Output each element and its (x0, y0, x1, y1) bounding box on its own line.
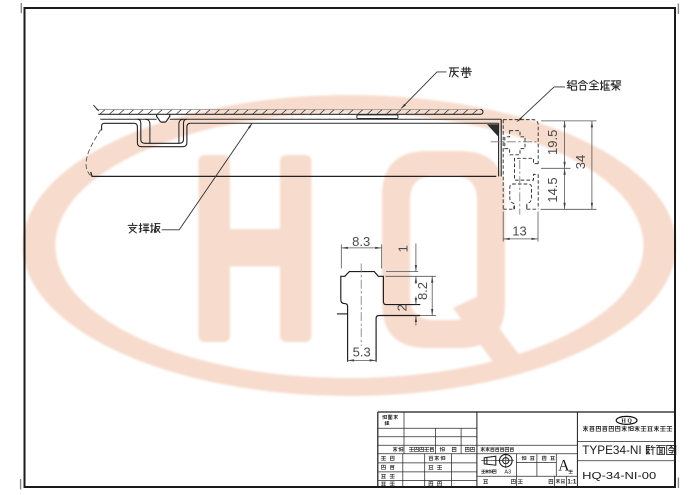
svg-text:13: 13 (512, 223, 526, 238)
svg-text:A3: A3 (504, 469, 511, 475)
svg-text:HQ-34-NI-00: HQ-34-NI-00 (582, 471, 656, 482)
svg-text:H Q: H Q (621, 419, 632, 425)
svg-text:1:1: 1:1 (567, 479, 577, 486)
svg-text:34: 34 (573, 155, 588, 169)
svg-text:14.5: 14.5 (545, 177, 560, 202)
svg-text:1: 1 (396, 245, 411, 252)
svg-text:2: 2 (395, 304, 410, 311)
svg-text:TYPE34-NI: TYPE34-NI (582, 443, 642, 457)
svg-text:8.2: 8.2 (415, 282, 430, 300)
svg-text:19.5: 19.5 (545, 130, 560, 155)
svg-text:8.3: 8.3 (352, 234, 370, 249)
svg-text:A: A (558, 457, 570, 474)
svg-text:5.3: 5.3 (353, 344, 371, 359)
